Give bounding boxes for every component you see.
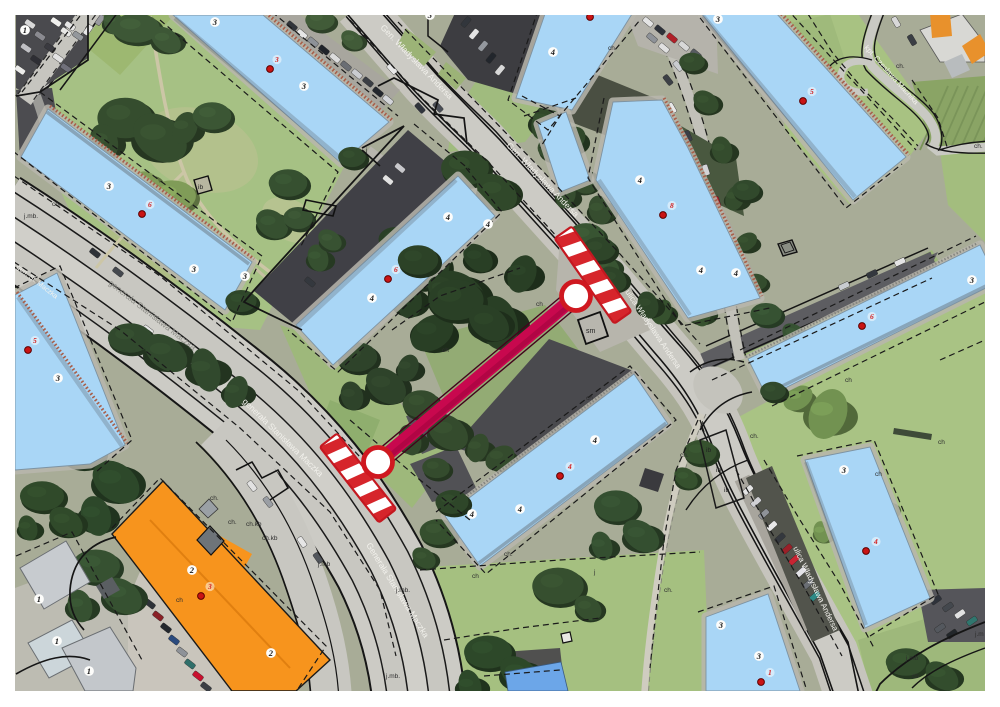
svg-text:ch.: ch. [750, 433, 759, 440]
svg-text:3: 3 [55, 373, 61, 383]
svg-text:1: 1 [23, 25, 27, 35]
svg-text:3: 3 [841, 465, 847, 475]
svg-text:j.mb.: j.mb. [385, 673, 400, 680]
svg-text:ch: ch [845, 377, 852, 384]
svg-text:4: 4 [369, 293, 374, 303]
svg-text:1: 1 [55, 636, 59, 646]
svg-text:3: 3 [242, 271, 248, 281]
svg-text:4: 4 [567, 462, 572, 471]
svg-text:6: 6 [394, 265, 398, 274]
svg-text:8: 8 [670, 201, 674, 210]
svg-text:j.m: j.m [974, 631, 984, 638]
svg-text:ch: ch [442, 347, 449, 354]
svg-text:ch: ch [472, 573, 479, 580]
svg-text:ib: ib [716, 467, 721, 474]
svg-text:ch: ch [536, 301, 543, 308]
svg-text:ch: ch [586, 395, 593, 402]
svg-text:3: 3 [715, 14, 721, 24]
svg-text:4: 4 [733, 268, 738, 278]
svg-text:j.mb.: j.mb. [395, 587, 410, 594]
svg-text:j.mb.: j.mb. [23, 213, 38, 220]
svg-text:1: 1 [87, 666, 91, 676]
svg-text:ch.kb: ch.kb [262, 535, 278, 542]
svg-text:ch.kb: ch.kb [246, 521, 262, 528]
svg-text:4: 4 [485, 219, 490, 229]
svg-text:j: j [365, 147, 367, 154]
svg-text:4: 4 [550, 47, 555, 57]
svg-text:3: 3 [106, 181, 112, 191]
svg-text:ch: ch [875, 471, 882, 478]
svg-text:3: 3 [274, 55, 279, 64]
svg-text:ch.: ch. [680, 452, 689, 459]
svg-text:ch.: ch. [228, 519, 237, 526]
svg-text:1: 1 [37, 594, 41, 604]
svg-text:ch: ch [176, 597, 183, 604]
svg-text:3: 3 [301, 81, 307, 91]
svg-text:2: 2 [268, 648, 274, 658]
svg-text:3: 3 [756, 651, 762, 661]
svg-text:3: 3 [191, 264, 197, 274]
svg-text:5: 5 [33, 336, 37, 345]
svg-text:ch.: ch. [664, 587, 673, 594]
svg-text:sm: sm [586, 328, 596, 335]
svg-text:3: 3 [212, 17, 218, 27]
svg-text:4: 4 [873, 537, 878, 546]
svg-text:4: 4 [698, 265, 703, 275]
svg-text:3: 3 [718, 620, 724, 630]
svg-text:4: 4 [637, 175, 642, 185]
svg-text:cb: cb [912, 673, 919, 680]
svg-text:ch: ch [938, 439, 945, 446]
svg-text:j.mb: j.mb [905, 655, 919, 662]
svg-text:j.mb: j.mb [317, 561, 331, 568]
svg-text:4: 4 [517, 504, 522, 514]
svg-text:ib: ib [198, 184, 203, 191]
svg-text:6: 6 [870, 312, 874, 321]
svg-text:4: 4 [445, 212, 450, 222]
svg-text:3: 3 [207, 582, 212, 591]
svg-text:ch.: ch. [504, 551, 513, 558]
svg-text:ib: ib [706, 447, 711, 454]
svg-text:4: 4 [469, 509, 474, 519]
svg-text:2: 2 [189, 565, 195, 575]
svg-text:3: 3 [969, 275, 975, 285]
svg-text:4: 4 [592, 435, 597, 445]
svg-text:j: j [593, 569, 595, 576]
svg-text:6: 6 [148, 200, 152, 209]
svg-text:ch.: ch. [974, 143, 983, 150]
svg-text:ib: ib [724, 487, 729, 494]
svg-text:ch.: ch. [896, 63, 905, 70]
svg-text:ch.: ch. [210, 495, 219, 502]
svg-text:ch: ch [608, 45, 615, 52]
svg-text:1: 1 [768, 668, 772, 677]
svg-text:5: 5 [810, 87, 814, 96]
svg-text:ch.: ch. [52, 201, 61, 208]
